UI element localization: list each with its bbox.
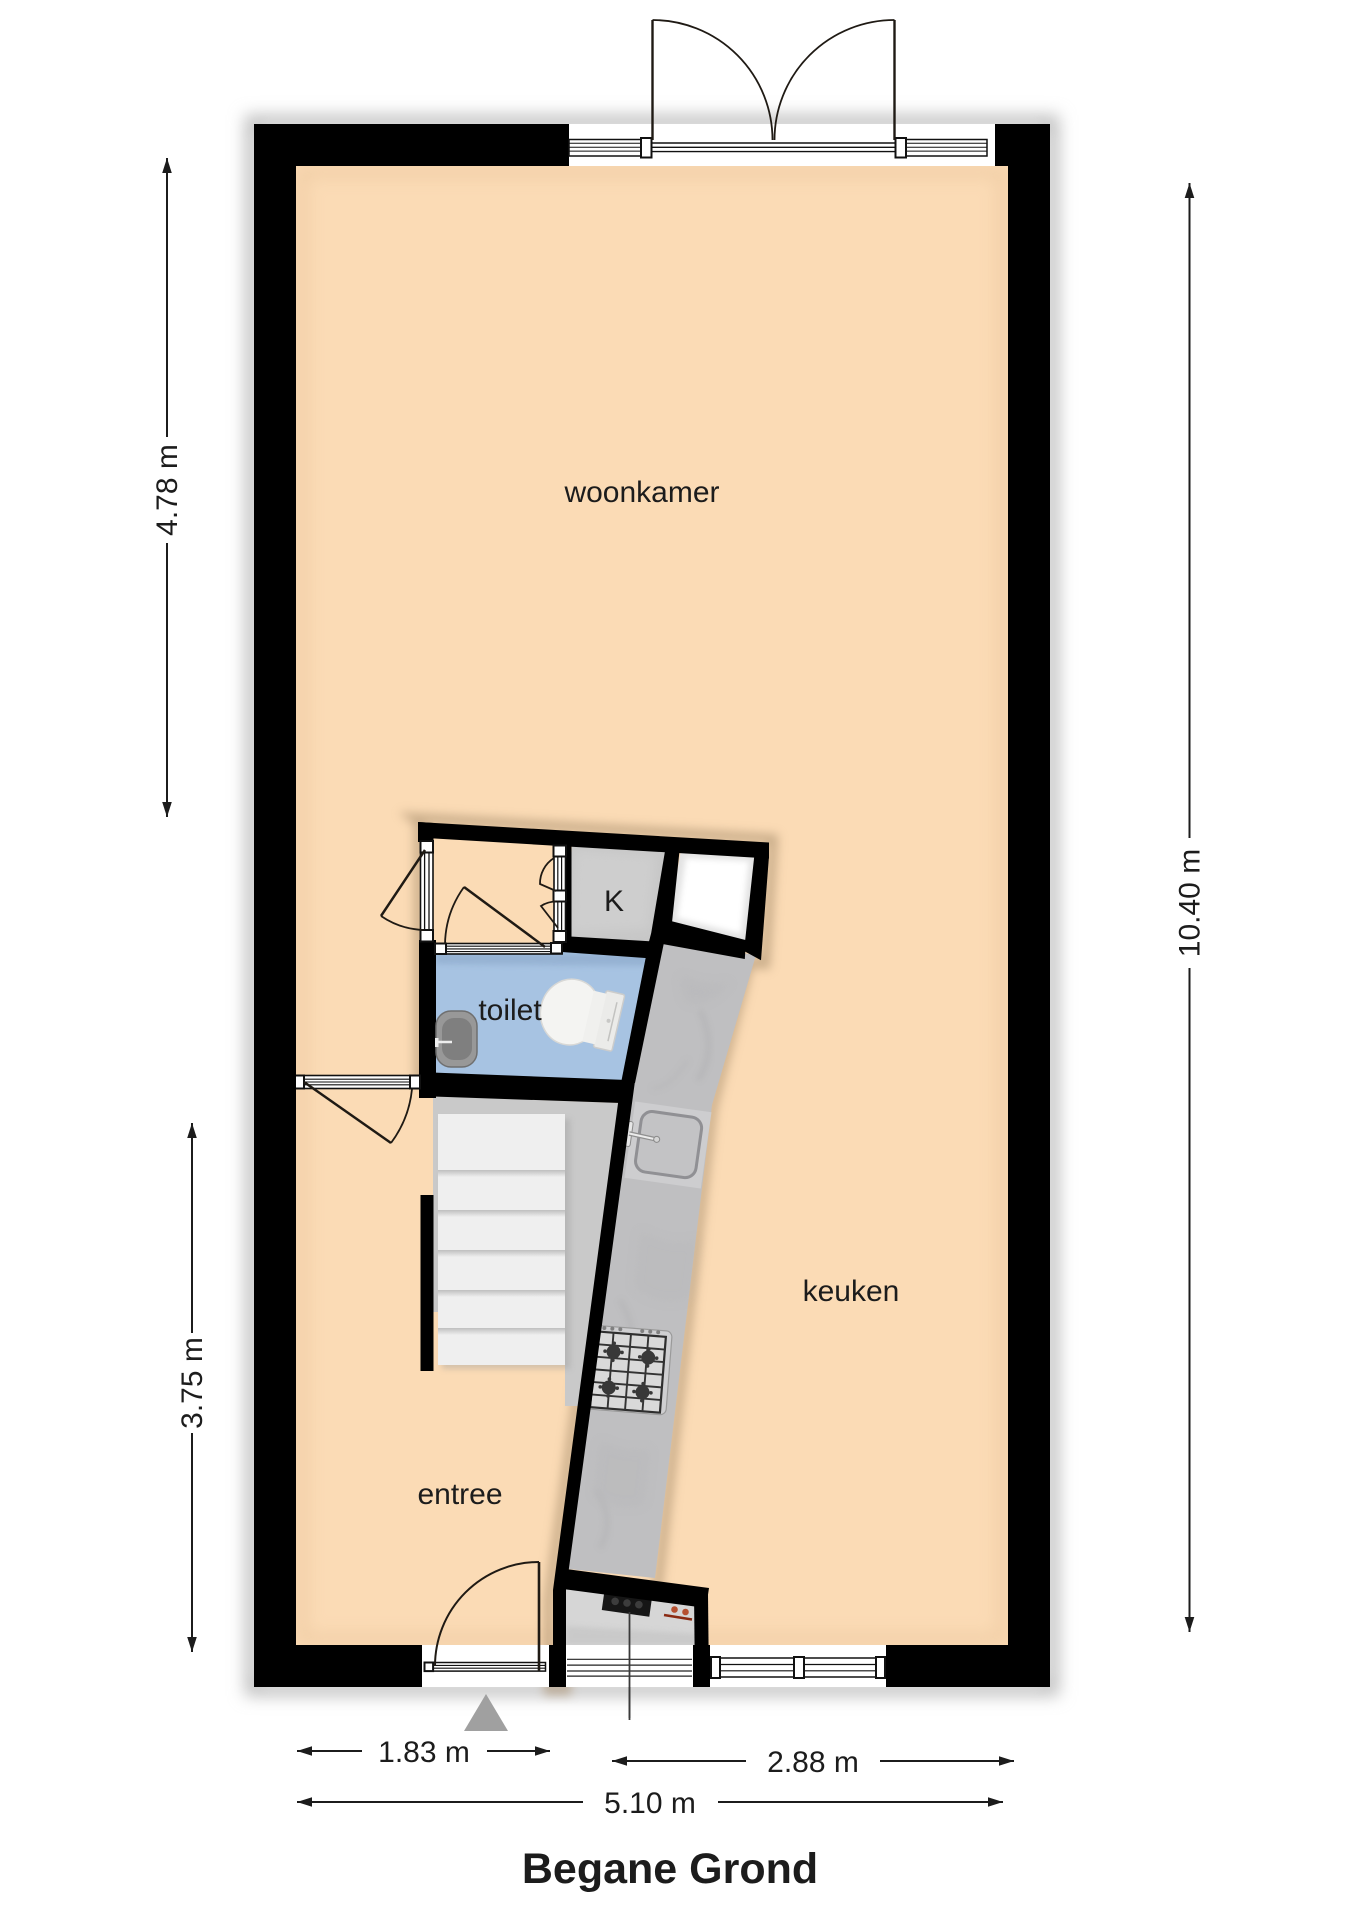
svg-text:2.88 m: 2.88 m (767, 1746, 859, 1779)
svg-text:keuken: keuken (803, 1275, 900, 1308)
svg-text:4.78 m: 4.78 m (151, 444, 184, 536)
svg-text:toilet: toilet (478, 994, 542, 1027)
svg-text:1.83 m: 1.83 m (378, 1736, 470, 1769)
svg-text:5.10 m: 5.10 m (604, 1787, 696, 1820)
svg-text:woonkamer: woonkamer (563, 476, 719, 509)
svg-text:3.75 m: 3.75 m (176, 1337, 209, 1429)
svg-text:10.40 m: 10.40 m (1174, 849, 1207, 957)
svg-text:K: K (604, 885, 624, 918)
svg-text:entree: entree (417, 1478, 502, 1511)
svg-text:Begane Grond: Begane Grond (522, 1845, 818, 1893)
